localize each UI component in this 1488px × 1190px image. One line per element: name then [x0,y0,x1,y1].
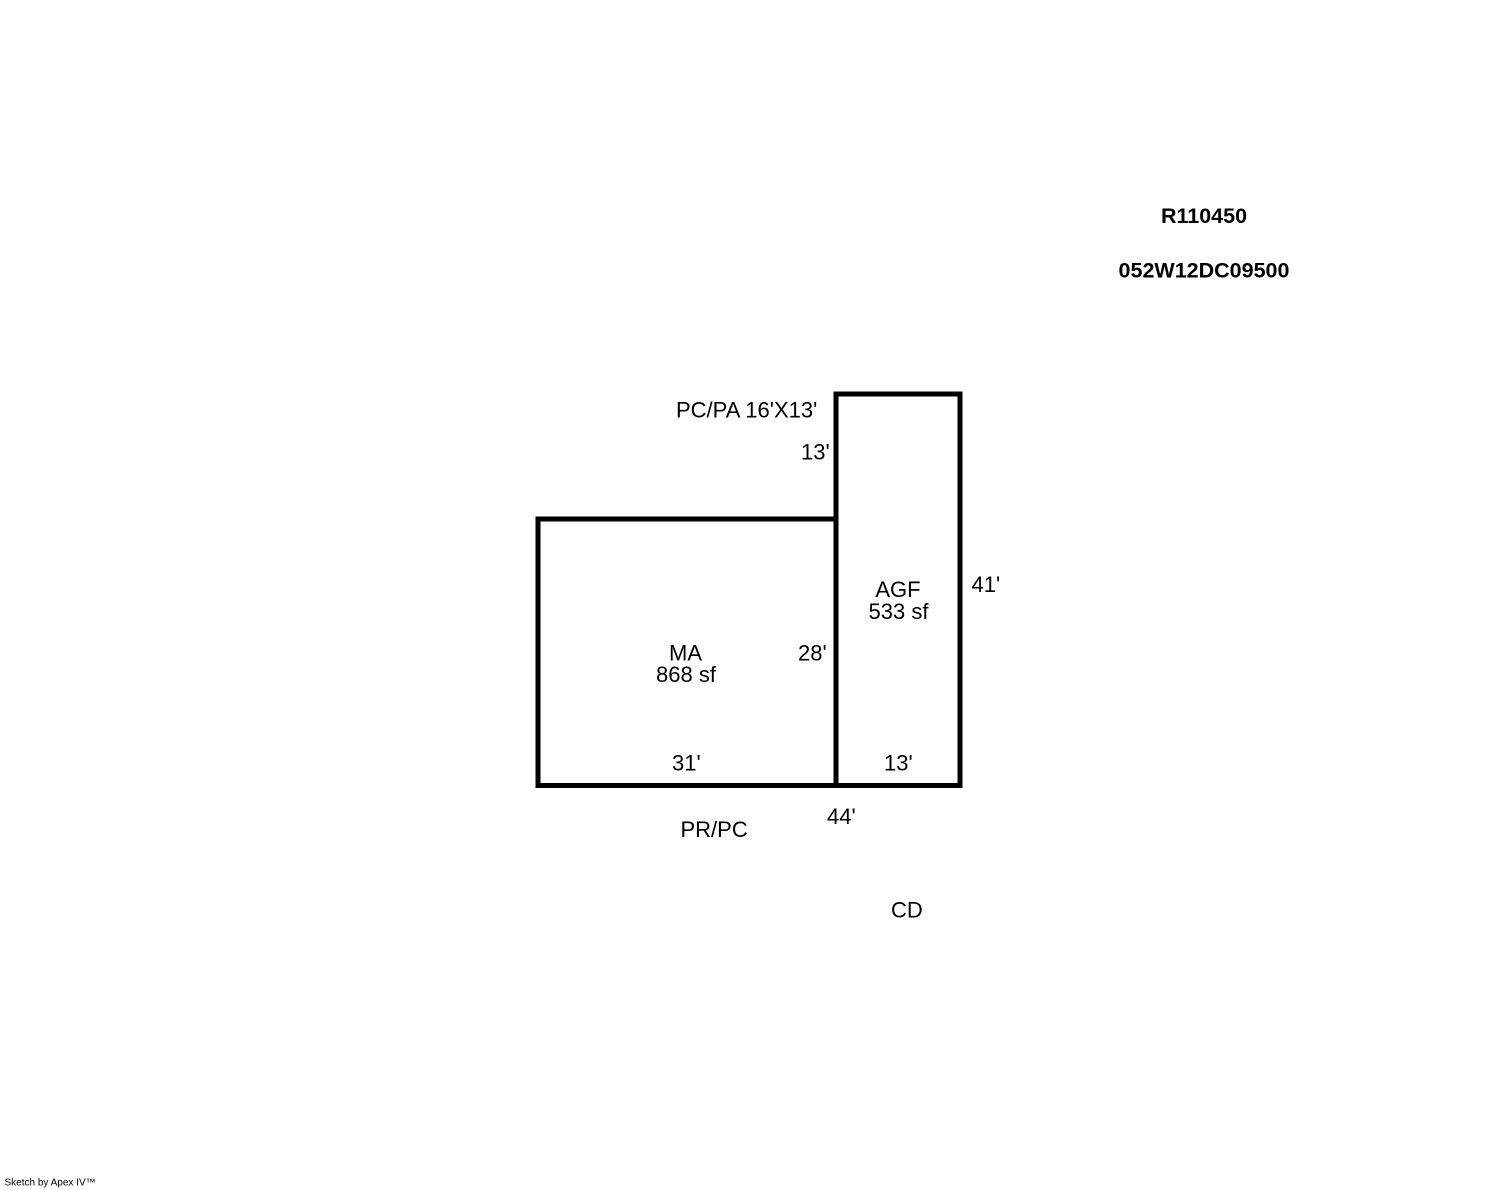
svg-text:13': 13' [884,751,913,776]
svg-text:44': 44' [827,804,856,829]
svg-text:28': 28' [798,641,827,666]
svg-text:Sketch by Apex IV™: Sketch by Apex IV™ [5,1178,96,1189]
svg-text:PC/PA 16'X13': PC/PA 16'X13' [676,398,817,423]
svg-text:CD: CD [891,898,923,923]
svg-text:41': 41' [972,572,1001,597]
svg-text:533 sf: 533 sf [869,599,930,624]
svg-text:PR/PC: PR/PC [681,817,748,842]
svg-text:868 sf: 868 sf [656,662,717,687]
svg-text:31': 31' [672,751,701,776]
svg-text:R110450: R110450 [1161,204,1247,228]
svg-text:052W12DC09500: 052W12DC09500 [1119,259,1290,283]
svg-text:13': 13' [801,440,830,465]
